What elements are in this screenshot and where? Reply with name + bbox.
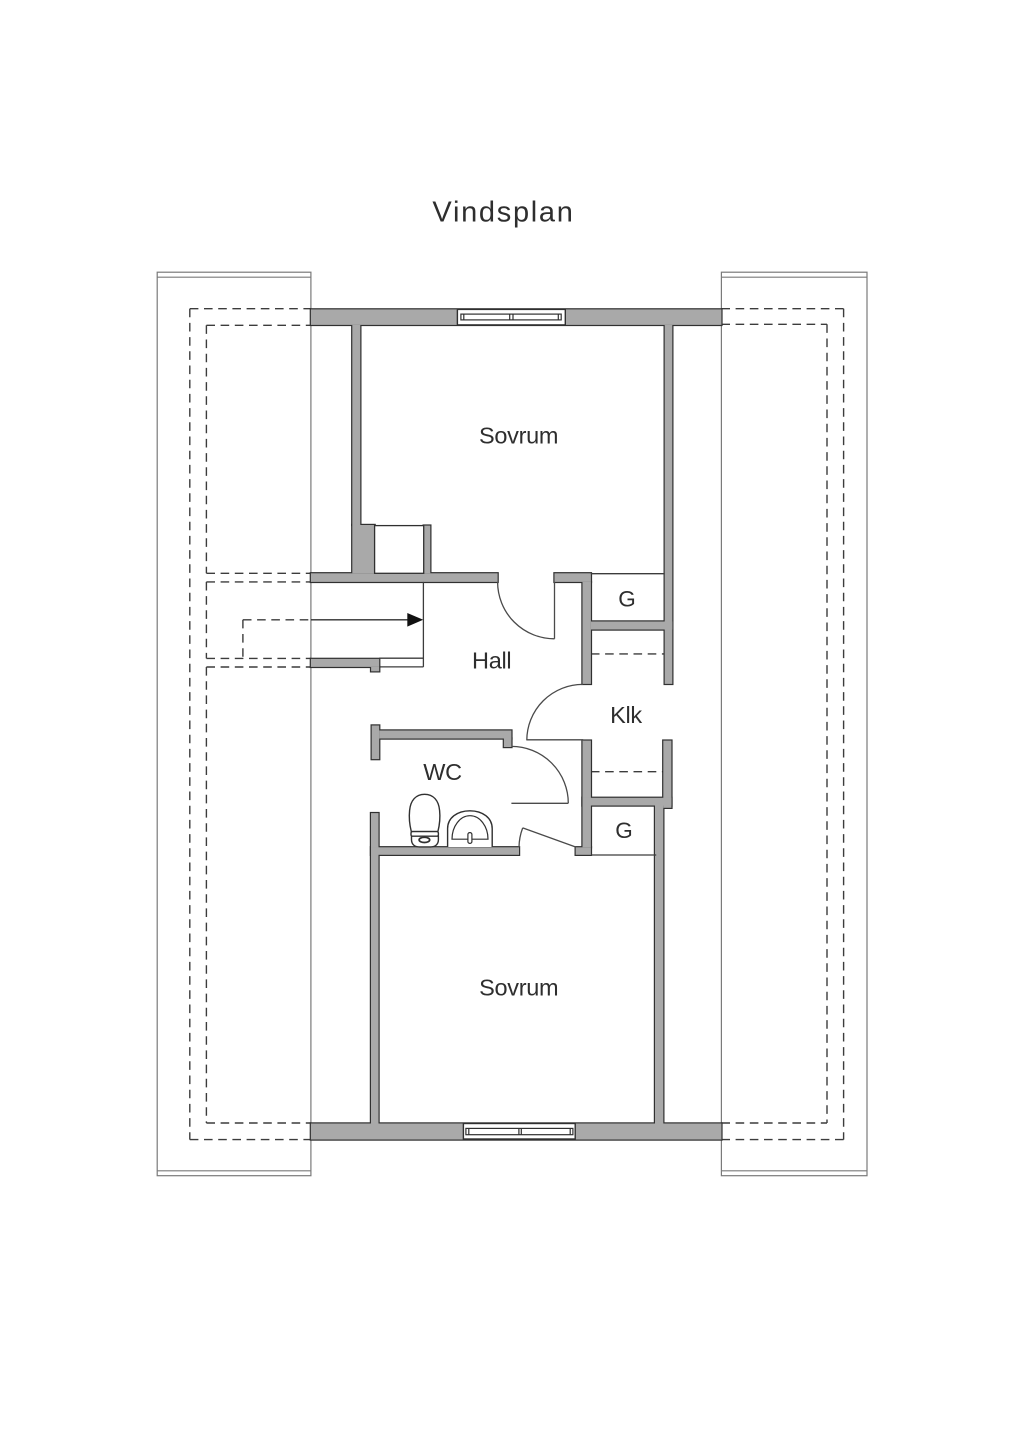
svg-text:Sovrum: Sovrum <box>479 975 558 1001</box>
svg-text:G: G <box>615 818 633 843</box>
svg-text:Vindsplan: Vindsplan <box>432 197 574 229</box>
svg-text:G: G <box>618 587 636 612</box>
svg-text:WC: WC <box>423 759 462 785</box>
svg-text:Hall: Hall <box>472 647 511 673</box>
svg-text:Klk: Klk <box>610 702 642 728</box>
svg-text:Sovrum: Sovrum <box>479 423 558 449</box>
